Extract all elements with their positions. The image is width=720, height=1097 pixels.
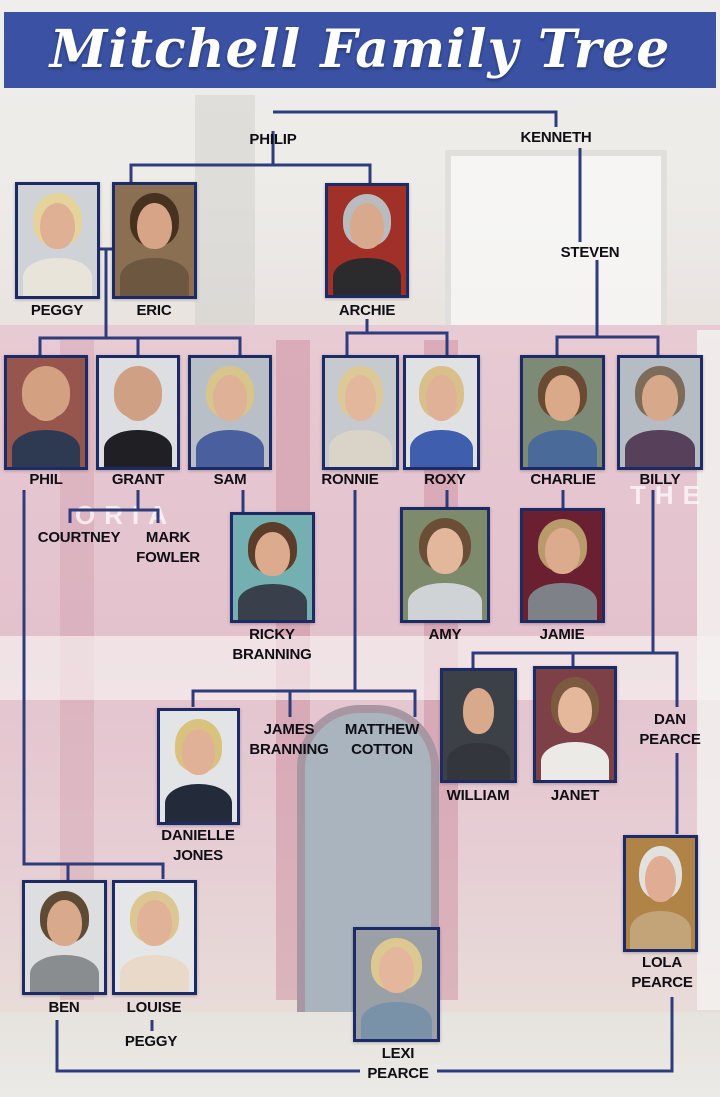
portrait-torso [408, 583, 482, 623]
person-label-line: LOUISE [127, 998, 182, 1018]
person-photo-peggy [15, 182, 100, 299]
person-label-line: AMY [429, 625, 462, 645]
person-photo-billy [617, 355, 703, 470]
person-label-sam: SAM [214, 470, 247, 490]
portrait-face [213, 375, 247, 421]
person-label-line: JONES [161, 846, 234, 866]
person-label-line: LEXI [367, 1044, 428, 1064]
tree-connector [273, 112, 556, 127]
person-label-ronnie: RONNIE [321, 470, 378, 490]
portrait-torso [528, 583, 598, 622]
person-label-line: WILLIAM [447, 786, 510, 806]
person-label-line: BILLY [640, 470, 681, 490]
person-photo-lola-pearce [623, 835, 698, 952]
portrait-face [255, 532, 290, 576]
portrait-torso [541, 742, 610, 782]
portrait-torso [104, 430, 173, 469]
person-label-line: PHIL [29, 470, 62, 490]
portrait-face [379, 947, 415, 993]
person-label-steven: STEVEN [561, 243, 620, 263]
person-photo-phil [4, 355, 88, 470]
person-label-ricky-branning: RICKYBRANNING [232, 625, 311, 665]
person-label-line: DANIELLE [161, 826, 234, 846]
portrait-torso [329, 430, 391, 469]
portrait-face [345, 375, 376, 421]
person-label-line: KENNETH [520, 128, 591, 148]
portrait-torso [23, 258, 93, 298]
portrait-torso [630, 911, 691, 951]
person-label-line: CHARLIE [530, 470, 595, 490]
person-photo-danielle-jones [157, 708, 240, 825]
person-label-philip: PHILIP [249, 130, 296, 150]
portrait-face [463, 688, 494, 734]
portrait-face [137, 900, 172, 946]
person-label-line: BEN [48, 998, 79, 1018]
person-label-line: LOLA [631, 953, 692, 973]
person-label-line: STEVEN [561, 243, 620, 263]
person-label-grant: GRANT [112, 470, 164, 490]
tree-connector [40, 338, 240, 355]
family-tree-infographic: ORIA THE Mitchell Family Tree PHILIPKENN… [0, 0, 720, 1097]
person-photo-charlie [520, 355, 605, 470]
person-label-line: ERIC [136, 301, 171, 321]
portrait-torso [30, 955, 100, 994]
person-label-billy: BILLY [640, 470, 681, 490]
person-label-line: PEARCE [639, 730, 700, 750]
person-photo-grant [96, 355, 180, 470]
person-label-peggy: PEGGY [31, 301, 83, 321]
person-label-roxy: ROXY [424, 470, 466, 490]
portrait-torso [361, 1002, 432, 1041]
portrait-face [558, 687, 592, 734]
portrait-face [645, 856, 675, 903]
person-label-line: COTTON [345, 740, 419, 760]
portrait-torso [528, 430, 598, 469]
tree-connector [557, 337, 658, 355]
portrait-torso [196, 430, 265, 469]
person-label-line: BRANNING [232, 645, 311, 665]
tree-connector [70, 510, 158, 523]
person-label-dan-pearce: DANPEARCE [639, 710, 700, 750]
person-label-line: RICKY [232, 625, 311, 645]
person-label-danielle-jones: DANIELLEJONES [161, 826, 234, 866]
person-label-janet: JANET [551, 786, 599, 806]
portrait-torso [333, 258, 402, 297]
person-label-william: WILLIAM [447, 786, 510, 806]
tree-connector [347, 333, 447, 355]
person-label-line: FOWLER [136, 548, 200, 568]
person-label-line: JANET [551, 786, 599, 806]
person-label-eric: ERIC [136, 301, 171, 321]
person-label-line: DAN [639, 710, 700, 730]
portrait-face [137, 203, 172, 250]
person-label-line: JAMES [249, 720, 328, 740]
tree-connector [131, 165, 370, 183]
person-label-louise: LOUISE [127, 998, 182, 1018]
person-label-lola-pearce: LOLAPEARCE [631, 953, 692, 993]
portrait-face [427, 528, 464, 574]
person-label-amy: AMY [429, 625, 462, 645]
person-photo-roxy [403, 355, 480, 470]
portrait-torso [165, 784, 233, 824]
person-label-courtney: COURTNEY [38, 528, 121, 548]
portrait-face [29, 375, 63, 421]
portrait-torso [625, 430, 695, 469]
person-photo-eric [112, 182, 197, 299]
portrait-face [47, 900, 82, 946]
person-label-ben: BEN [48, 998, 79, 1018]
portrait-face [426, 375, 457, 421]
person-label-line: PHILIP [249, 130, 296, 150]
portrait-torso [410, 430, 472, 469]
person-label-kenneth: KENNETH [520, 128, 591, 148]
person-label-line: GRANT [112, 470, 164, 490]
person-photo-janet [533, 666, 617, 783]
person-label-line: PEGGY [125, 1032, 177, 1052]
tree-connector [437, 997, 672, 1071]
person-label-line: RONNIE [321, 470, 378, 490]
person-photo-louise [112, 880, 197, 995]
person-label-line: BRANNING [249, 740, 328, 760]
person-label-line: SAM [214, 470, 247, 490]
portrait-face [545, 528, 580, 574]
person-label-peggy-jr: PEGGY [125, 1032, 177, 1052]
person-label-line: PEARCE [367, 1064, 428, 1084]
person-photo-sam [188, 355, 272, 470]
person-label-line: ARCHIE [339, 301, 395, 321]
portrait-face [350, 203, 384, 249]
tree-connector [57, 1020, 360, 1071]
portrait-torso [447, 743, 509, 782]
person-photo-william [440, 668, 517, 783]
person-label-line: JAMIE [540, 625, 585, 645]
portrait-face [40, 203, 75, 250]
person-photo-archie [325, 183, 409, 298]
person-label-line: MARK [136, 528, 200, 548]
portrait-torso [12, 430, 81, 469]
portrait-torso [120, 955, 190, 994]
portrait-torso [238, 584, 308, 622]
person-label-mark-fowler: MARKFOWLER [136, 528, 200, 568]
person-label-jamie: JAMIE [540, 625, 585, 645]
person-label-archie: ARCHIE [339, 301, 395, 321]
person-label-james-branning: JAMESBRANNING [249, 720, 328, 760]
person-label-phil: PHIL [29, 470, 62, 490]
person-label-matthew-cotton: MATTHEWCOTTON [345, 720, 419, 760]
person-photo-ronnie [322, 355, 399, 470]
portrait-torso [120, 258, 190, 298]
person-label-line: PEARCE [631, 973, 692, 993]
portrait-face [545, 375, 580, 421]
person-label-lexi-pearce: LEXIPEARCE [367, 1044, 428, 1084]
person-label-line: ROXY [424, 470, 466, 490]
portrait-face [182, 729, 216, 776]
person-label-charlie: CHARLIE [530, 470, 595, 490]
portrait-face [121, 375, 155, 421]
person-label-line: MATTHEW [345, 720, 419, 740]
person-photo-jamie [520, 508, 605, 623]
person-photo-amy [400, 507, 490, 623]
person-label-line: COURTNEY [38, 528, 121, 548]
person-photo-ben [22, 880, 107, 995]
portrait-face [642, 375, 677, 421]
person-photo-ricky-branning [230, 512, 315, 623]
person-photo-lexi-pearce [353, 927, 440, 1042]
person-label-line: PEGGY [31, 301, 83, 321]
